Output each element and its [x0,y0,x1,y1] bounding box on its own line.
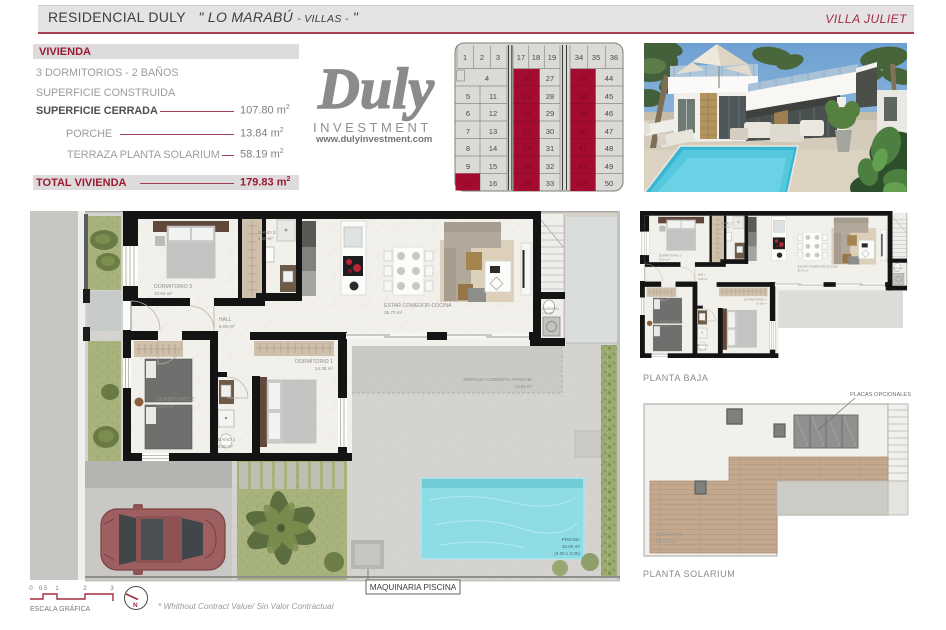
svg-text:MAQUINARIA PISCINA: MAQUINARIA PISCINA [370,583,457,592]
svg-text:33: 33 [546,179,554,188]
svg-text:1: 1 [463,53,467,62]
svg-text:25: 25 [523,162,531,171]
svg-text:48: 48 [605,144,613,153]
svg-text:17: 17 [517,53,525,62]
svg-text:34: 34 [575,53,583,62]
svg-text:15: 15 [489,162,497,171]
svg-text:38: 38 [579,92,587,101]
svg-text:14: 14 [489,144,497,153]
svg-text:24: 24 [523,144,531,153]
svg-text:* Whithout Contract Value/ Sin: * Whithout Contract Value/ Sin Valor Con… [158,602,334,611]
svg-text:26: 26 [523,179,531,188]
svg-text:10: 10 [464,179,472,188]
svg-text:39: 39 [579,109,587,118]
svg-text:7: 7 [466,127,470,136]
svg-text:TERRAZA CUBIERTA-PORCHE: TERRAZA CUBIERTA-PORCHE [463,377,532,383]
svg-text:32: 32 [546,162,554,171]
svg-text:50: 50 [605,179,613,188]
svg-text:(6.00 x 3.00): (6.00 x 3.00) [554,551,580,556]
svg-text:ESCALA GRÁFICA: ESCALA GRÁFICA [30,604,91,613]
svg-text:6: 6 [466,109,470,118]
svg-text:1: 1 [55,585,59,592]
svg-text:2: 2 [480,53,484,62]
svg-text:PLACAS OPCIONALES: PLACAS OPCIONALES [850,392,911,398]
svg-text:13: 13 [489,127,497,136]
svg-text:47: 47 [605,127,613,136]
svg-text:4: 4 [485,74,489,83]
svg-text:42: 42 [579,162,587,171]
svg-text:0.5: 0.5 [39,585,48,592]
svg-text:46: 46 [605,109,613,118]
svg-text:PLANTA SOLARIUM: PLANTA SOLARIUM [643,569,735,579]
svg-text:2: 2 [83,585,87,592]
svg-text:SOLARIUM: SOLARIUM [656,532,682,538]
svg-text:PLANTA BAJA: PLANTA BAJA [643,373,708,383]
svg-text:20: 20 [523,74,531,83]
svg-text:19: 19 [548,53,556,62]
svg-text:27: 27 [546,74,554,83]
svg-text:3: 3 [110,585,114,592]
svg-text:16: 16 [489,179,497,188]
svg-text:29: 29 [546,109,554,118]
svg-text:N: N [133,602,138,609]
svg-text:36: 36 [610,53,618,62]
svg-text:13.84 m²: 13.84 m² [515,384,533,389]
svg-text:5: 5 [466,92,470,101]
svg-text:41: 41 [579,144,587,153]
svg-text:18.00 m²: 18.00 m² [562,544,581,549]
svg-text:21: 21 [523,92,531,101]
svg-text:28: 28 [546,92,554,101]
svg-text:30: 30 [546,127,554,136]
svg-text:44: 44 [605,74,613,83]
svg-text:PISCINA: PISCINA [562,537,581,542]
svg-text:37: 37 [579,74,587,83]
svg-text:58.19 m²: 58.19 m² [656,539,676,545]
svg-text:31: 31 [546,144,554,153]
svg-text:18: 18 [532,53,540,62]
svg-text:22: 22 [523,109,531,118]
svg-text:40: 40 [579,127,587,136]
svg-text:23: 23 [523,127,531,136]
svg-text:43: 43 [579,179,587,188]
svg-text:11: 11 [489,92,497,101]
svg-text:49: 49 [605,162,613,171]
svg-text:45: 45 [605,92,613,101]
svg-text:35: 35 [592,53,600,62]
svg-text:8: 8 [466,144,470,153]
svg-text:0: 0 [29,585,33,592]
svg-text:9: 9 [466,162,470,171]
svg-text:12: 12 [489,109,497,118]
svg-text:3: 3 [496,53,500,62]
